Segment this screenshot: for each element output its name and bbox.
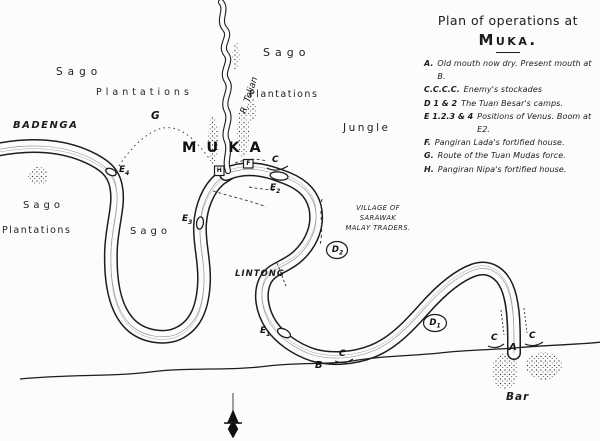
legend-text: Enemy's stockades — [464, 83, 543, 96]
marker-subscript: 2 — [339, 250, 343, 257]
legend-text: Positions of Venus. Boom at E2. — [477, 110, 598, 136]
label-plantations-northwest: Plantations — [96, 88, 193, 98]
legend-row-g: G. Route of the Tuan Mudas force. — [424, 149, 598, 162]
marker-c-stockade-muka: C — [272, 156, 279, 165]
legend: A. Old mouth now dry. Present mouth at B… — [424, 57, 598, 176]
label-bar: Bar — [506, 392, 529, 403]
village-line-1: Village of — [337, 203, 419, 213]
legend-row-a: A. Old mouth now dry. Present mouth at B… — [424, 57, 598, 83]
marker-d2-label: D2 — [327, 246, 348, 255]
marker-subscript: 2 — [276, 188, 280, 195]
label-plantations-west: Plantations — [2, 226, 71, 236]
label-lintong: Lintong — [235, 270, 285, 279]
legend-key: C.C.C.C. — [424, 83, 460, 96]
marker-b-present-mouth: B — [315, 361, 323, 371]
label-jungle: Jungle — [343, 123, 390, 134]
marker-e1-label: E1 — [260, 327, 270, 336]
legend-text: Route of the Tuan Mudas force. — [438, 149, 566, 162]
label-village-of-sarawak-malay-traders: Village of Sarawak Malay Traders. — [337, 203, 419, 234]
legend-key: H. — [424, 163, 434, 176]
legend-text: Old mouth now dry. Present mouth at B. — [437, 57, 598, 83]
marker-subscript: 4 — [125, 170, 129, 177]
legend-text: Pangiran Nipa's fortified house. — [438, 163, 567, 176]
marker-a-old-mouth: A — [509, 343, 517, 353]
marker-d1-label: D1 — [425, 319, 446, 328]
marker-h-label: H — [215, 168, 225, 174]
map-title-line1: Plan of operations at — [420, 13, 596, 28]
stockade-bracket-a-right — [525, 342, 543, 346]
marker-c-stockade-a-right: C — [529, 332, 536, 341]
stockade-bracket-a-left — [488, 344, 504, 348]
label-muka-town: Muka — [182, 141, 271, 156]
legend-key: E 1.2.3 & 4 — [424, 110, 473, 136]
marker-g-route: G — [151, 111, 160, 122]
marker-subscript: 1 — [266, 331, 270, 338]
label-sago-northeast: Sago — [263, 47, 310, 58]
label-sago-center: Sago — [130, 227, 171, 237]
badenga-stipple — [28, 167, 48, 185]
legend-text: The Tuan Besar's camps. — [461, 97, 563, 110]
south-bank-dashes — [213, 191, 266, 207]
marker-e3-label: E3 — [182, 215, 192, 224]
village-line-3: Malay Traders. — [337, 223, 419, 233]
legend-row-d: D 1 & 2 The Tuan Besar's camps. — [424, 97, 598, 110]
legend-text: Pangiran Lada's fortified house. — [435, 136, 565, 149]
marker-c-stockade-a-left: C — [491, 334, 498, 343]
legend-key: D 1 & 2 — [424, 97, 457, 110]
map-title: Plan of operations at Muka. — [420, 13, 596, 53]
map-title-line2: Muka. — [420, 31, 596, 49]
label-badenga: Badenga — [13, 121, 78, 131]
legend-row-f: F. Pangiran Lada's fortified house. — [424, 136, 598, 149]
label-sago-west: Sago — [23, 201, 64, 211]
label-plantations-northeast: Plantations — [249, 90, 318, 100]
legend-key: G. — [424, 149, 434, 162]
legend-key: F. — [424, 136, 431, 149]
village-line-2: Sarawak — [337, 213, 419, 223]
marker-c-stockade-b: C — [339, 350, 346, 359]
marker-subscript: 1 — [436, 323, 440, 330]
sandbar-right — [526, 352, 562, 380]
riverbank-stipple-top — [233, 42, 240, 70]
legend-row-e: E 1.2.3 & 4 Positions of Venus. Boom at … — [424, 110, 598, 136]
compass-north-arrow — [224, 393, 242, 438]
legend-key: A. — [424, 57, 433, 83]
marker-subscript: 3 — [188, 219, 192, 226]
marker-e4-label: E4 — [119, 166, 129, 175]
marker-e2-label: E2 — [270, 184, 280, 193]
legend-row-c: C.C.C.C. Enemy's stockades — [424, 83, 598, 96]
title-divider — [496, 52, 520, 53]
legend-row-h: H. Pangiran Nipa's fortified house. — [424, 163, 598, 176]
marker-letter: D — [332, 245, 339, 255]
map-canvas: Plan of operations at Muka. A. Old mouth… — [0, 0, 600, 441]
old-mouth-dashes-right — [524, 308, 527, 333]
marker-f-label: F — [244, 161, 254, 167]
label-sago-northwest: Sago — [56, 67, 102, 78]
old-mouth-dashes-left — [501, 310, 504, 335]
